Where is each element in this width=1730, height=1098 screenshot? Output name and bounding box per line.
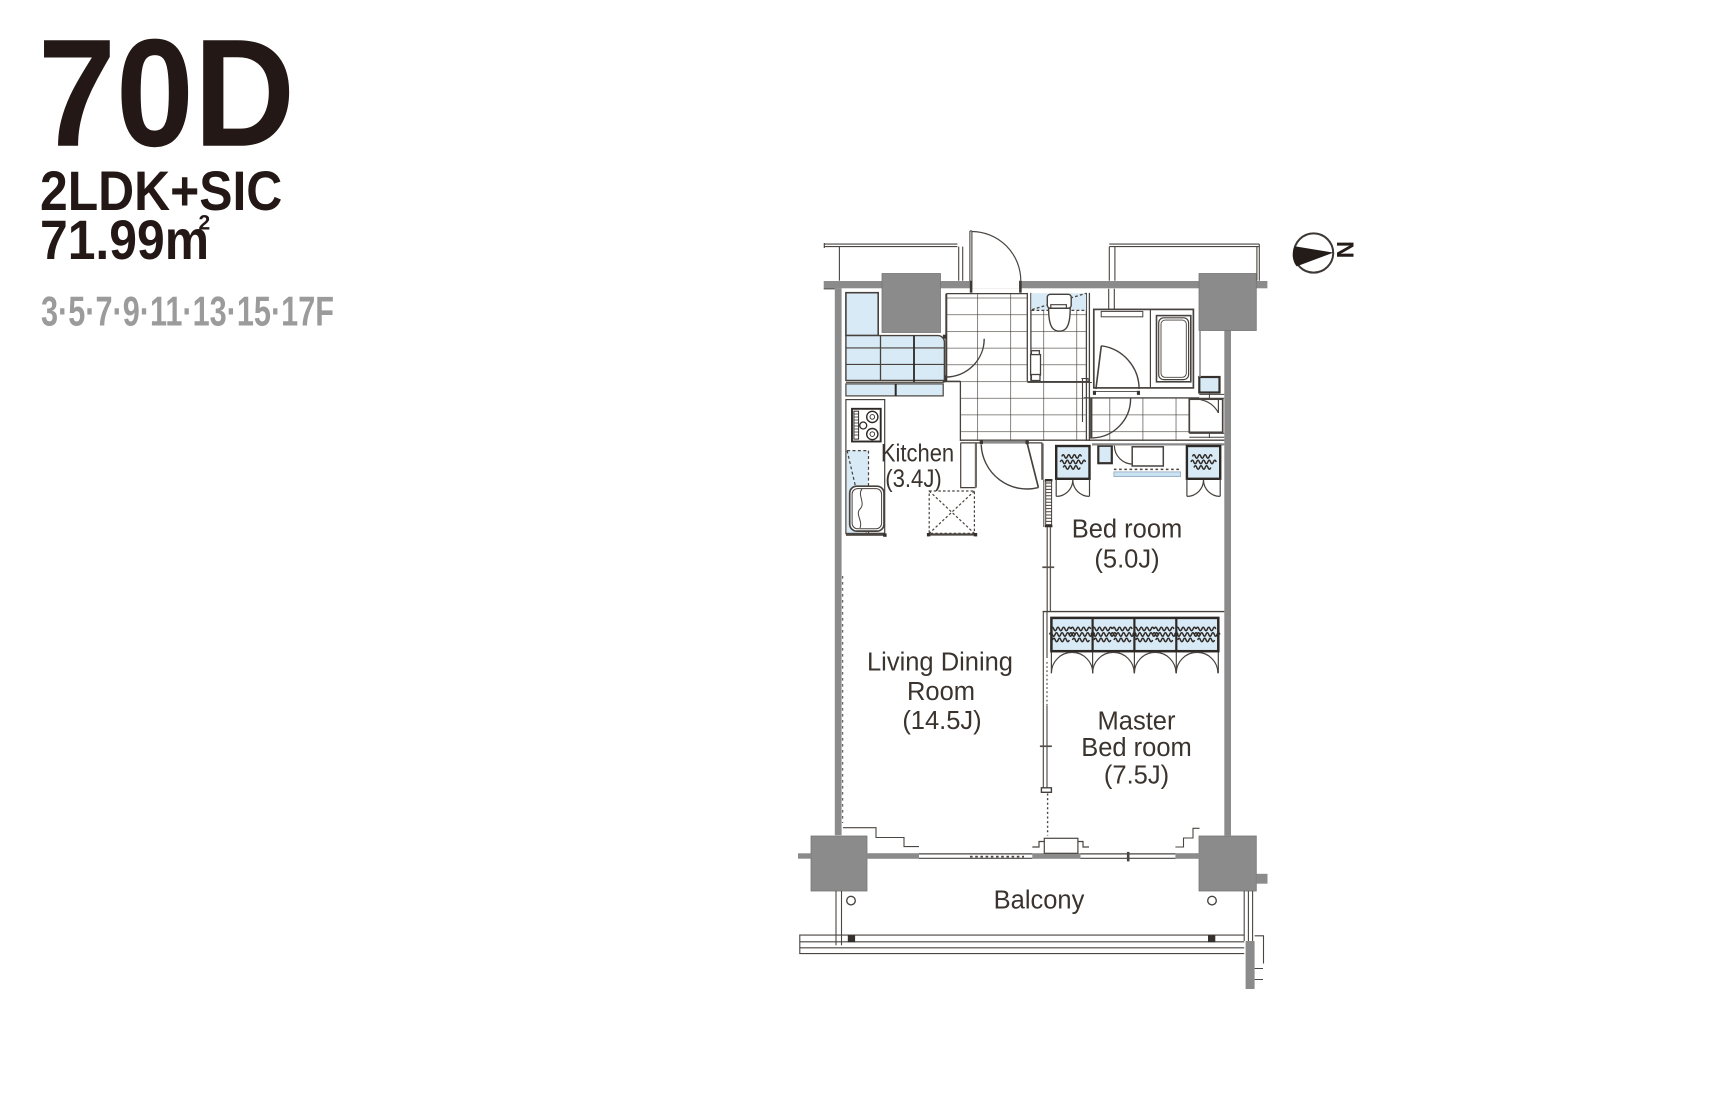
svg-text:(5.0J): (5.0J) <box>1094 546 1159 574</box>
svg-text:3·5·7·9·11·13·15·17F: 3·5·7·9·11·13·15·17F <box>41 288 334 335</box>
svg-text:Bed room: Bed room <box>1072 516 1183 544</box>
svg-text:(3.4J): (3.4J) <box>885 466 942 494</box>
svg-text:70D: 70D <box>38 8 295 179</box>
svg-text:Room: Room <box>907 678 975 706</box>
svg-text:Bed room: Bed room <box>1081 734 1192 762</box>
svg-text:2: 2 <box>199 212 211 235</box>
svg-text:Balcony: Balcony <box>994 887 1085 915</box>
svg-text:(14.5J): (14.5J) <box>902 707 981 735</box>
svg-text:Master: Master <box>1098 708 1176 736</box>
svg-text:N: N <box>1331 241 1358 258</box>
svg-text:(7.5J): (7.5J) <box>1104 762 1169 790</box>
svg-text:Living Dining: Living Dining <box>867 649 1013 677</box>
svg-text:71.99m: 71.99m <box>40 209 209 271</box>
svg-text:Kitchen: Kitchen <box>881 439 954 467</box>
